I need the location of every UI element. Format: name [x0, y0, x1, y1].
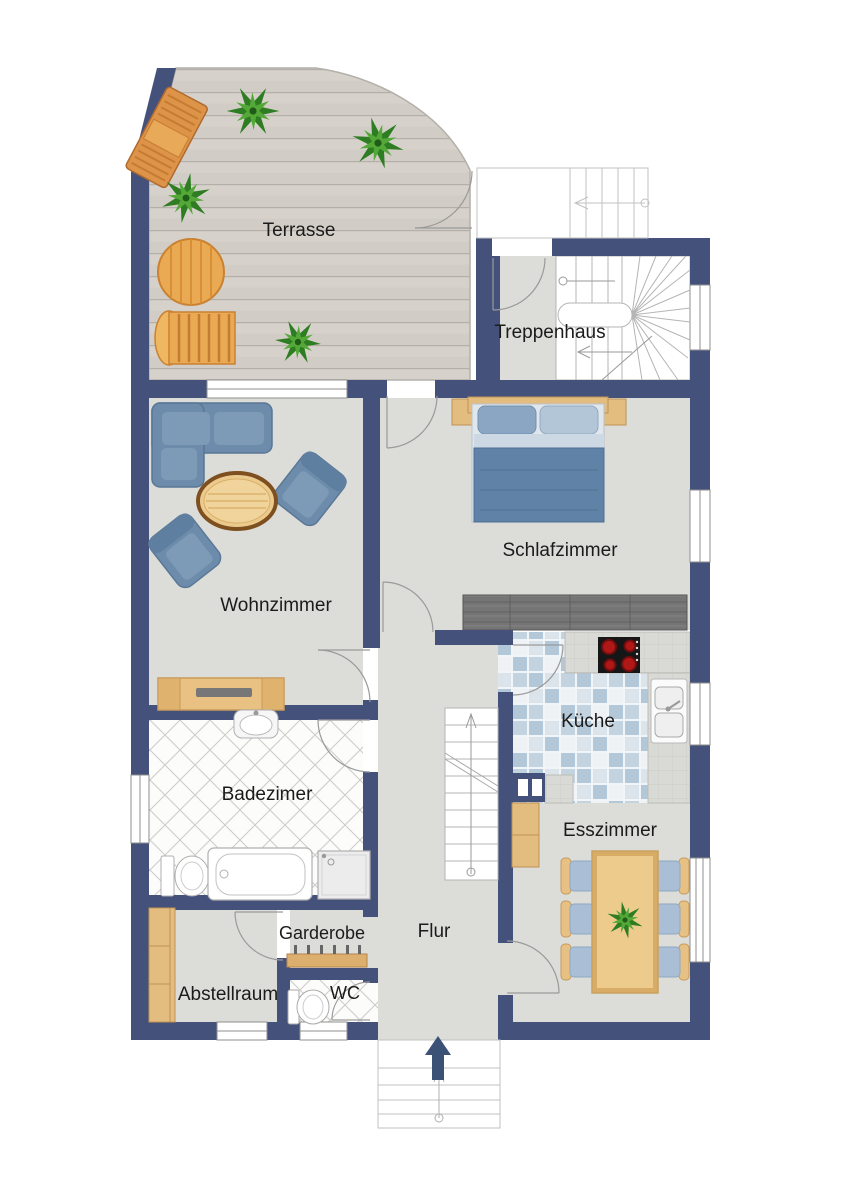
sideboard	[158, 678, 284, 710]
dining-chair	[656, 944, 689, 980]
label-flur: Flur	[418, 921, 451, 942]
terrace-bench	[155, 311, 235, 365]
dining-chair	[656, 858, 689, 894]
wall-bedroom-bottom	[363, 630, 380, 645]
wall-divider	[363, 968, 378, 983]
window-kitchen	[690, 683, 710, 745]
wall-mid	[131, 380, 207, 398]
dining-chair	[656, 901, 689, 937]
label-terrasse: Terrasse	[263, 220, 336, 241]
label-esszimmer: Esszimmer	[563, 820, 658, 841]
window-stairwell	[690, 285, 710, 350]
pillow	[540, 406, 598, 434]
dining-chair	[561, 901, 594, 937]
wc-toilet	[288, 990, 329, 1024]
window-bottom-1	[217, 1022, 267, 1040]
kitchen-sink	[651, 679, 687, 743]
wall-right	[690, 562, 710, 683]
label-treppenhaus: Treppenhaus	[494, 322, 605, 343]
wall-stairwell-top	[476, 238, 492, 256]
floor-plan-canvas: Terrasse Treppenhaus Wohnzimmer Schlafzi…	[0, 0, 845, 1200]
label-wohnzimmer: Wohnzimmer	[220, 595, 332, 616]
wall-bottom	[498, 1022, 710, 1040]
exterior-stair-top	[477, 168, 649, 238]
wall-stairwell-top	[552, 238, 710, 256]
wall-hall-dining	[498, 995, 513, 1022]
dining-cabinet	[512, 803, 539, 867]
window-dining	[690, 858, 710, 962]
hallway-staircase	[445, 708, 498, 880]
wall-bottom	[347, 1022, 378, 1040]
wall-living-bedroom	[363, 398, 380, 648]
bathroom-toilet	[161, 856, 209, 896]
wall-bedroom-bottom	[435, 630, 513, 645]
bed	[452, 397, 626, 522]
label-kueche: Küche	[561, 711, 615, 732]
pillow	[478, 406, 536, 434]
wall-right	[690, 745, 710, 858]
dining-chair	[561, 944, 594, 980]
window-bathroom	[131, 775, 149, 843]
window-bedroom	[690, 490, 710, 562]
bathtub	[208, 848, 312, 900]
floor-plan: Terrasse Treppenhaus Wohnzimmer Schlafzi…	[0, 0, 845, 1200]
storage-cabinet	[149, 908, 175, 1022]
wall-bottom	[131, 1022, 217, 1040]
label-abstellraum: Abstellraum	[178, 984, 278, 1005]
wall-mid	[347, 380, 387, 398]
wall-hall-kitchen	[498, 692, 513, 943]
coffee-table	[198, 473, 276, 529]
window-terrace-living	[207, 380, 347, 398]
wall-stairwell-left	[476, 256, 500, 382]
wall-bottom	[267, 1022, 300, 1040]
label-wc: WC	[330, 983, 360, 1003]
window-bottom-2	[300, 1022, 347, 1040]
wall-mid	[435, 380, 710, 398]
label-garderobe: Garderobe	[279, 923, 365, 943]
duvet	[474, 448, 604, 522]
dining-table	[592, 851, 658, 993]
wall-right	[690, 238, 710, 285]
bedroom-wardrobe	[463, 595, 687, 630]
label-badezimer: Badezimer	[222, 784, 313, 805]
shower	[318, 851, 370, 899]
dining-chair	[561, 858, 594, 894]
label-schlafzimmer: Schlafzimmer	[502, 540, 618, 561]
bathroom-sink	[234, 710, 278, 738]
stove	[598, 637, 640, 673]
terrace-round-table	[158, 239, 224, 305]
wall-right	[690, 350, 710, 490]
wall-garderobe-wc	[290, 968, 365, 980]
